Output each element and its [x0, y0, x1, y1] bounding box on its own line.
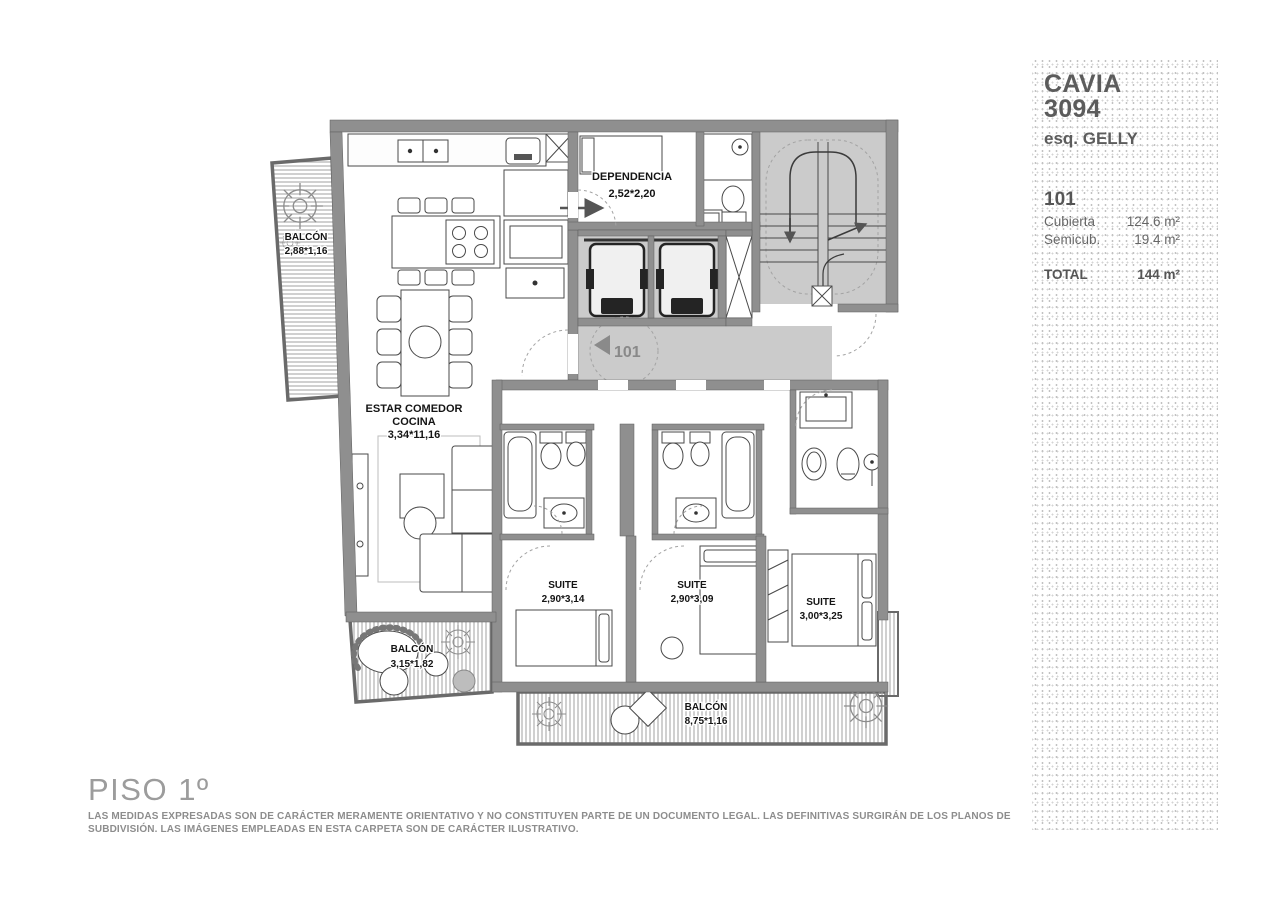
bathroom-3 [800, 392, 880, 486]
svg-text:2,52*2,20: 2,52*2,20 [608, 188, 655, 200]
svg-text:3,15*1,82: 3,15*1,82 [391, 659, 434, 670]
dining-area [377, 290, 472, 396]
svg-text:COCINA: COCINA [392, 416, 435, 428]
suite-3: SUITE 3,00*3,25 [768, 550, 876, 646]
svg-text:101: 101 [614, 344, 641, 361]
svg-text:BALCÓN: BALCÓN [685, 700, 728, 713]
suite-2: SUITE 2,90*3,09 [661, 546, 762, 659]
svg-text:SUITE: SUITE [677, 580, 707, 591]
brochure-page: CAVIA 3094 esq. GELLY 101 Cubierta 124.6… [0, 0, 1280, 905]
svg-text:SUITE: SUITE [806, 597, 836, 608]
bathroom-2 [662, 432, 754, 528]
svg-text:DEPENDENCIA: DEPENDENCIA [592, 171, 672, 183]
svg-text:SUITE: SUITE [548, 580, 578, 591]
svg-text:3,00*3,25: 3,00*3,25 [800, 611, 843, 622]
svg-text:ESTAR COMEDOR: ESTAR COMEDOR [366, 403, 463, 415]
balcony-top-left: BALCÓN 2,88*1,16 [272, 158, 342, 400]
svg-text:2,88*1,16: 2,88*1,16 [285, 246, 328, 257]
svg-text:8,75*1,16: 8,75*1,16 [685, 716, 728, 727]
svg-text:3,34*11,16: 3,34*11,16 [388, 429, 441, 441]
kitchen [348, 122, 572, 298]
svg-text:2,90*3,14: 2,90*3,14 [542, 594, 585, 605]
suite-1: SUITE 2,90*3,14 [516, 580, 612, 666]
bathroom-1 [504, 432, 586, 528]
living-area [352, 436, 498, 592]
stairwell [760, 132, 886, 306]
floor-plan: 101 BALCÓN 2,88*1,16 BALCÓN 3,15*1,82 [0, 0, 1280, 905]
svg-text:2,90*3,09: 2,90*3,09 [671, 594, 714, 605]
svg-text:BALCÓN: BALCÓN [285, 230, 328, 243]
svg-text:BALCÓN: BALCÓN [391, 642, 434, 655]
balcony-bottom-left: BALCÓN 3,15*1,82 [350, 618, 492, 702]
